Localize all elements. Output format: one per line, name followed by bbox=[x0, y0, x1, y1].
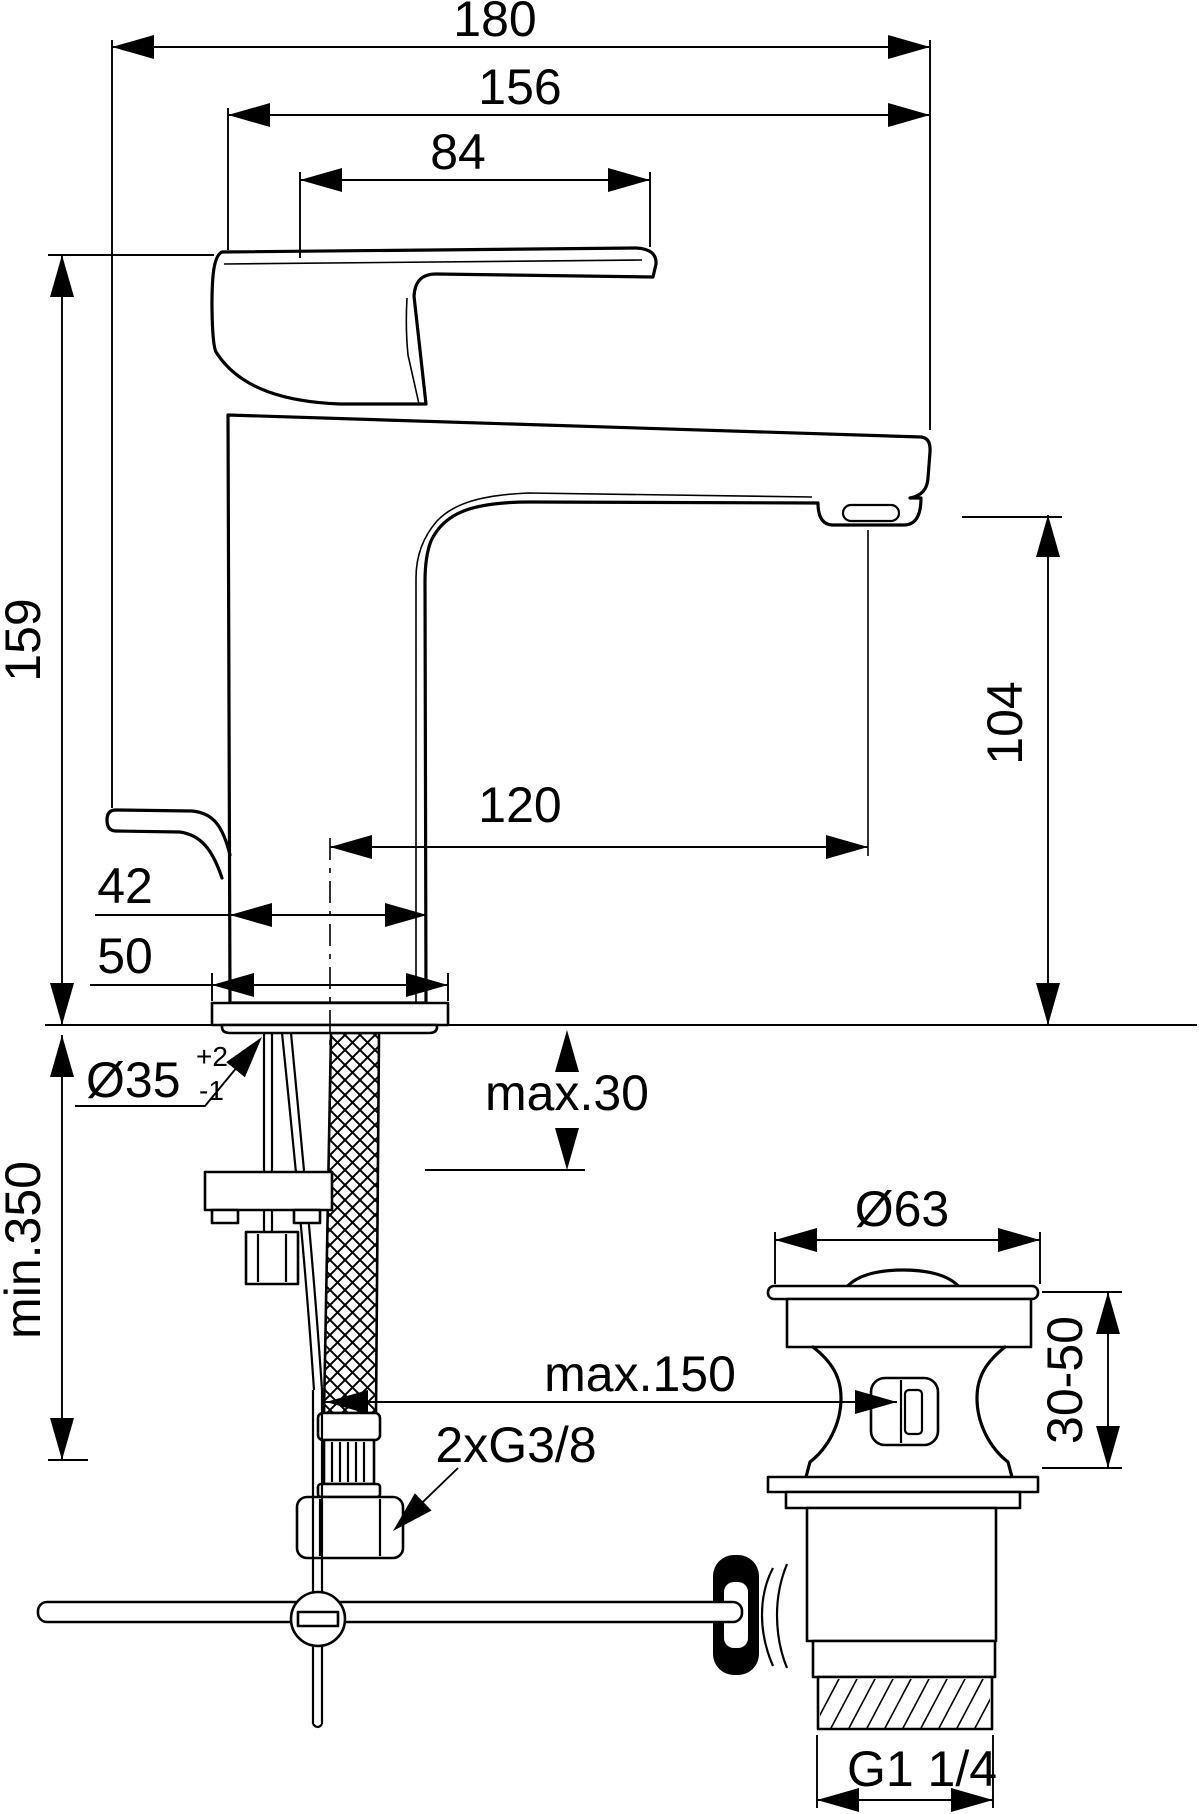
dimension-84: 84 bbox=[300, 124, 650, 258]
dimension-g38: 2xG3/8 bbox=[385, 1417, 597, 1540]
arrowhead-bottom bbox=[50, 1418, 74, 1460]
arrowhead-left bbox=[775, 1228, 817, 1252]
arrowhead-right bbox=[998, 1228, 1040, 1252]
dim-label-dia35-sub: -1 bbox=[199, 1075, 224, 1106]
arrowhead-top bbox=[50, 255, 74, 297]
dim-label-dia63: Ø63 bbox=[855, 1181, 950, 1237]
dim-label-min350: min.350 bbox=[0, 1161, 51, 1339]
technical-drawing: 180 156 84 159 min.350 42 bbox=[0, 0, 1200, 1814]
arrowhead-bottom bbox=[50, 983, 74, 1025]
dim-label-3050: 30-50 bbox=[1037, 1316, 1093, 1444]
arrowhead-left bbox=[112, 35, 154, 59]
dim-label-dia35-sup: +2 bbox=[196, 1041, 228, 1072]
arrowhead-down bbox=[555, 1128, 579, 1170]
fitting-collar bbox=[318, 1484, 380, 1497]
dim-lines bbox=[962, 515, 1062, 1025]
dimension-156: 156 bbox=[228, 59, 930, 250]
arrowhead-bottom bbox=[1036, 983, 1060, 1025]
arrowhead-left bbox=[228, 103, 270, 127]
arrowhead-top bbox=[50, 1035, 74, 1077]
dim-lines bbox=[300, 172, 650, 258]
dimension-3050: 30-50 bbox=[1037, 1292, 1122, 1468]
arrowhead-right bbox=[826, 835, 868, 859]
dimension-max30: max.30 bbox=[425, 1030, 649, 1170]
supply-hose bbox=[324, 1033, 379, 1413]
dim-label-g114: G1 1/4 bbox=[847, 1741, 997, 1797]
dim-lines bbox=[48, 1035, 88, 1460]
hose-braid bbox=[324, 1033, 379, 1413]
drain-upper-housing bbox=[787, 1299, 1031, 1347]
knob-cap bbox=[107, 810, 116, 831]
drain-neck-right bbox=[977, 1347, 1012, 1477]
dim-label-156: 156 bbox=[478, 59, 561, 115]
dim-label-50: 50 bbox=[97, 928, 153, 984]
handle-outline bbox=[212, 248, 656, 404]
dim-label-180: 180 bbox=[453, 0, 536, 47]
dim-label-max30: max.30 bbox=[485, 1065, 649, 1121]
dimension-104: 104 bbox=[962, 515, 1062, 1025]
dimension-g114: G1 1/4 bbox=[817, 1735, 997, 1812]
arrowhead-top bbox=[1036, 515, 1060, 557]
arrowhead-right bbox=[608, 168, 650, 192]
screw-slot bbox=[298, 1612, 338, 1626]
dim-label-84: 84 bbox=[430, 124, 486, 180]
drain-flange bbox=[768, 1286, 1038, 1299]
locknut-step bbox=[786, 1492, 1020, 1508]
horizontal-rod bbox=[38, 1602, 742, 1622]
drain-neck-left bbox=[806, 1347, 841, 1477]
dimension-min350: min.350 bbox=[0, 1035, 88, 1460]
dim-label-max150: max.150 bbox=[544, 1346, 736, 1402]
drain-body bbox=[807, 1508, 996, 1641]
handle-lever bbox=[212, 248, 656, 404]
drain-body-step bbox=[813, 1641, 995, 1677]
dim-label-120: 120 bbox=[478, 777, 561, 833]
fitting-collar bbox=[318, 1413, 380, 1440]
dim-label-g38: 2xG3/8 bbox=[435, 1417, 596, 1473]
plate-foot bbox=[212, 1210, 238, 1223]
arrowhead-bottom bbox=[1096, 1426, 1120, 1468]
dimension-dia35: Ø35 +2 -1 bbox=[75, 1029, 271, 1108]
arrowhead-left bbox=[300, 168, 342, 192]
body-inner-edge bbox=[416, 493, 812, 1003]
arrowhead-right bbox=[888, 103, 930, 127]
rod-lower bbox=[313, 1646, 322, 1727]
dimension-max150: max.150 bbox=[322, 1346, 897, 1414]
dim-label-159: 159 bbox=[0, 598, 51, 681]
plate-foot bbox=[294, 1210, 320, 1223]
dim-label-42: 42 bbox=[97, 858, 153, 914]
drain-assembly bbox=[713, 1270, 1038, 1730]
dim-label-104: 104 bbox=[977, 681, 1033, 764]
dim-label-dia35: Ø35 bbox=[86, 1052, 181, 1108]
arrowhead-right bbox=[888, 35, 930, 59]
ball-joint-socket bbox=[762, 1564, 787, 1668]
mounting-nut bbox=[246, 1232, 298, 1284]
locknut-flange bbox=[768, 1477, 1038, 1492]
arrowhead-top bbox=[1096, 1292, 1120, 1334]
mounting-plate bbox=[205, 1172, 332, 1210]
drawing-canvas: 180 156 84 159 min.350 42 bbox=[0, 0, 1200, 1814]
